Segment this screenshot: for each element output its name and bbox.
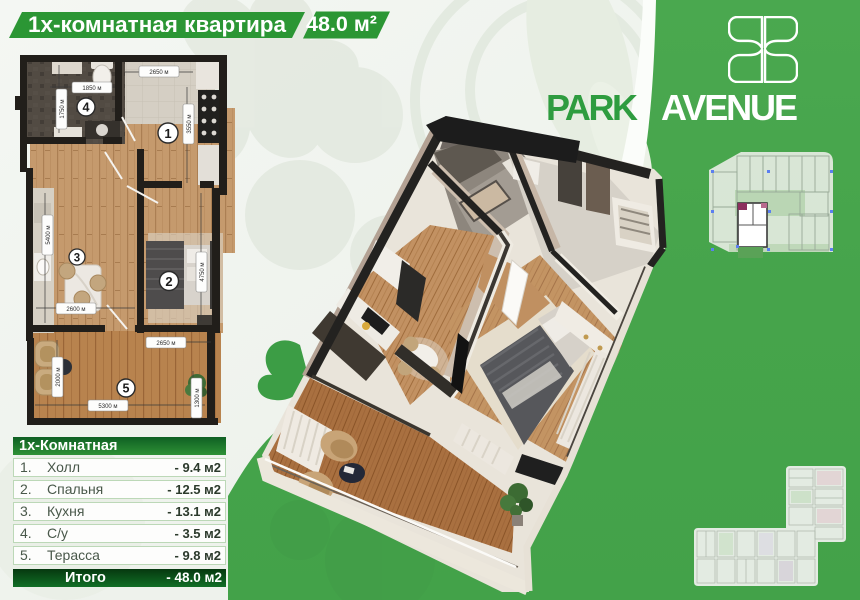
svg-text:1750 м: 1750 м bbox=[60, 99, 66, 118]
svg-text:2650 м: 2650 м bbox=[149, 70, 168, 76]
svg-text:4750 м: 4750 м bbox=[200, 262, 206, 281]
svg-text:5: 5 bbox=[123, 382, 130, 396]
svg-text:3: 3 bbox=[74, 253, 80, 265]
svg-text:48.0 м²: 48.0 м² bbox=[306, 12, 377, 36]
svg-text:4: 4 bbox=[83, 101, 90, 115]
svg-text:2600 м: 2600 м bbox=[66, 307, 85, 313]
svg-text:2: 2 bbox=[165, 274, 172, 289]
svg-text:5300 м: 5300 м bbox=[98, 404, 117, 410]
svg-text:2000 м: 2000 м bbox=[56, 367, 62, 386]
svg-text:1: 1 bbox=[164, 126, 171, 141]
svg-text:5400 м: 5400 м bbox=[46, 225, 52, 244]
svg-text:1300 м: 1300 м bbox=[195, 388, 201, 407]
svg-text:AVENUE: AVENUE bbox=[661, 87, 798, 128]
svg-text:3550 м: 3550 м bbox=[187, 114, 193, 133]
svg-text:2650 м: 2650 м bbox=[156, 341, 175, 347]
svg-text:1х-комнатная квартира: 1х-комнатная квартира bbox=[28, 12, 287, 37]
svg-text:1850 м: 1850 м bbox=[82, 86, 101, 92]
